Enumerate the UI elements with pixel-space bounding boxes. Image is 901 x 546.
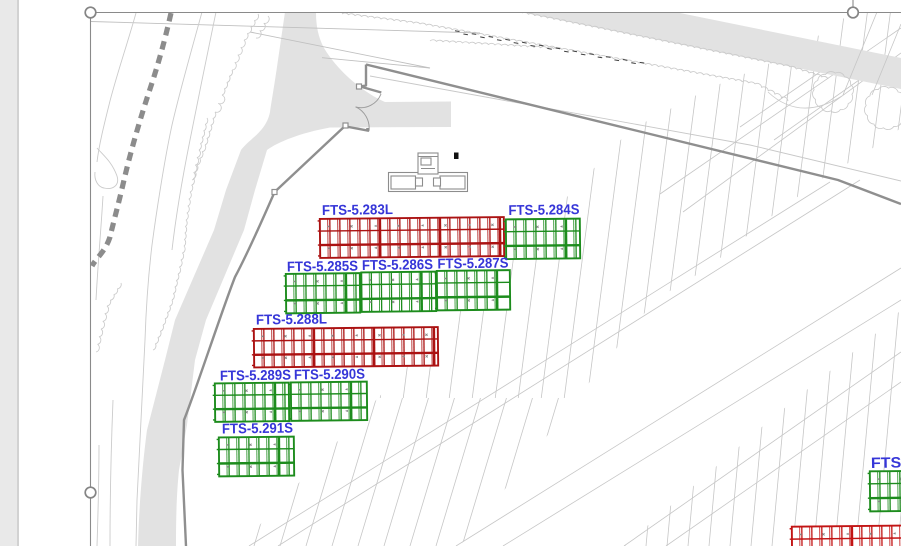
svg-text:FTS-5.283L: FTS-5.283L: [322, 202, 394, 219]
svg-text:FTS-5.290S: FTS-5.290S: [294, 367, 365, 384]
svg-text:FTS-5.287S: FTS-5.287S: [437, 256, 508, 273]
svg-text:FTS-5.291S: FTS-5.291S: [222, 421, 293, 438]
svg-text:FTS-5.289S: FTS-5.289S: [220, 368, 291, 385]
svg-text:FTS-5.286S: FTS-5.286S: [362, 257, 433, 274]
svg-text:FTS-5.285S: FTS-5.285S: [287, 259, 358, 276]
svg-text:FTS-5.284S: FTS-5.284S: [508, 202, 579, 219]
svg-text:FTS-5.288L: FTS-5.288L: [256, 312, 328, 329]
svg-text:FTS-5.2: FTS-5.2: [871, 454, 901, 472]
